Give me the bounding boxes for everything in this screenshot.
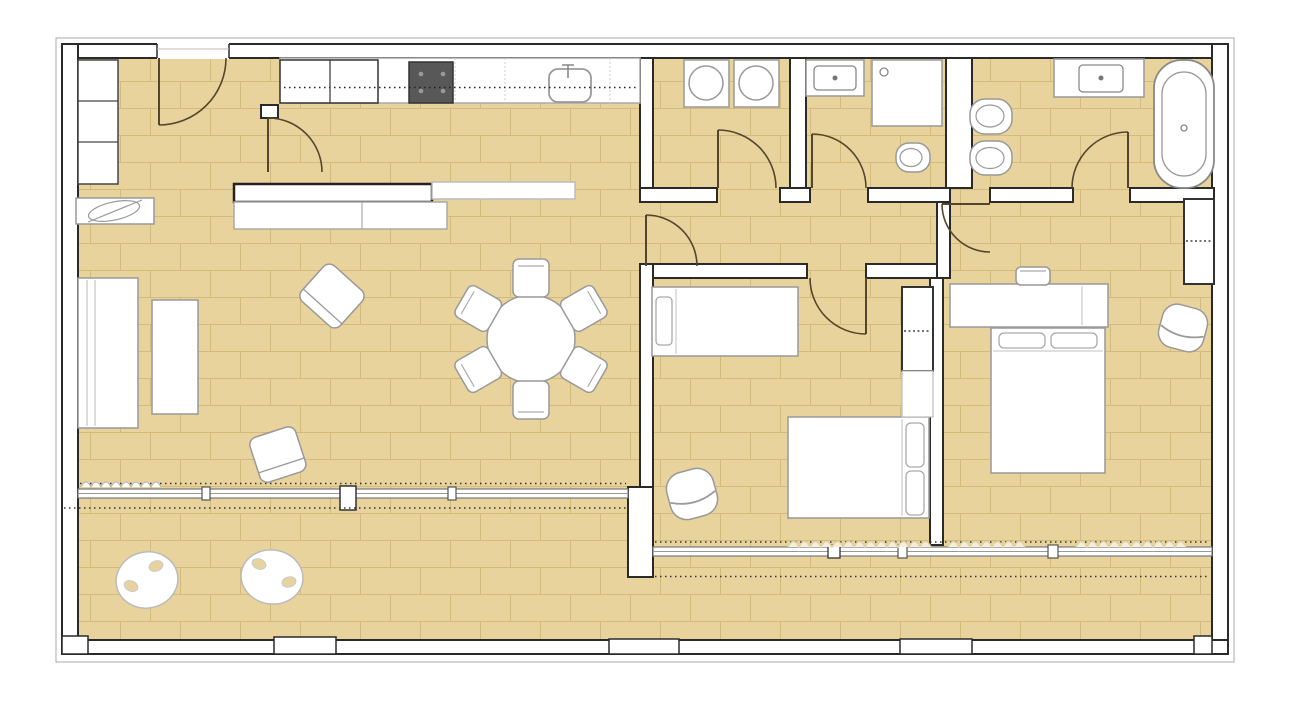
bed2-pillow-2 <box>1051 333 1097 348</box>
plan-layers <box>56 38 1234 662</box>
bed1-single-pillow <box>656 297 672 345</box>
wall-balcony-divider <box>628 487 653 577</box>
living-glazing-joint-1 <box>202 487 210 500</box>
bathtub <box>1154 60 1214 188</box>
wall-hall-bottom-a <box>653 264 807 278</box>
living-sideboard <box>234 202 447 229</box>
bed1-double-pillow-2 <box>906 471 924 515</box>
floor-plan <box>0 0 1300 704</box>
bath2-vanity-drain <box>1099 76 1104 81</box>
bed1-wardrobe <box>902 287 933 371</box>
cooktop-burner-1 <box>419 72 424 77</box>
wall-shaft-column <box>946 58 972 188</box>
bed2-pillow-1 <box>999 333 1045 348</box>
coffee-table <box>152 300 198 414</box>
bed2-double-bed <box>991 328 1105 473</box>
bottom-wall-notch-5 <box>1194 636 1212 654</box>
bed1-wardrobe-shelf <box>902 371 933 417</box>
wall-hall-band-b <box>780 188 810 202</box>
wall-hall-band-d <box>990 188 1073 202</box>
bed2-desk <box>950 284 1108 327</box>
bed2-desk-chair <box>1016 267 1050 285</box>
kitchen-sink <box>549 69 591 102</box>
wall-hall-band-c <box>868 188 950 202</box>
wall-entry-stub <box>261 105 278 118</box>
wall-laundry-bath1 <box>790 58 806 188</box>
cooktop <box>409 62 453 103</box>
cooktop-burner-2 <box>441 72 446 77</box>
bottom-wall-notch-2 <box>274 637 336 654</box>
exterior-wall-top <box>62 44 1228 58</box>
bath1-shower <box>872 60 942 126</box>
living-glazing-joint-2 <box>448 487 456 500</box>
front-door-opening <box>157 42 229 59</box>
kitchen-bench <box>432 182 575 199</box>
bottom-wall-notch-1 <box>62 636 88 654</box>
cooktop-burner-3 <box>419 89 424 94</box>
bath1-toilet <box>896 143 930 172</box>
dining-chair-1 <box>513 259 549 297</box>
wall-entry-partition <box>234 184 432 202</box>
wall-hall-band-a <box>640 188 717 202</box>
floor-plan-canvas <box>0 0 1300 704</box>
bath1-sink-drain <box>833 76 838 81</box>
bedroom-glazing-joint-3 <box>1048 545 1058 558</box>
cooktop-burner-4 <box>441 89 446 94</box>
wall-hall-bottom-b <box>866 264 937 278</box>
bed1-double-pillow-1 <box>906 423 924 467</box>
entry-closet <box>78 60 118 184</box>
living-glazing-column <box>340 486 356 510</box>
bottom-wall-notch-4 <box>900 639 972 654</box>
dining-chair-4 <box>513 381 549 419</box>
bed1-single-bed <box>652 287 798 356</box>
bottom-wall-notch-3 <box>609 639 679 654</box>
wall-kitchen-laundry <box>640 58 653 188</box>
exterior-wall-left <box>62 44 78 654</box>
kitchen-cabinets <box>280 60 378 103</box>
